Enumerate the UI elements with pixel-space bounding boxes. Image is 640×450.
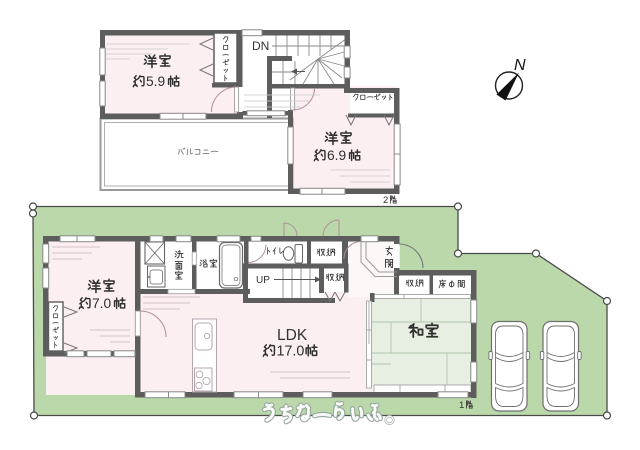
svg-text:5.9: 5.9 — [146, 74, 165, 89]
svg-text:17.0: 17.0 — [277, 344, 305, 360]
svg-text:DN: DN — [252, 39, 269, 53]
svg-text:LDK: LDK — [277, 327, 308, 344]
svg-text:1: 1 — [459, 400, 464, 411]
svg-text:7.0: 7.0 — [92, 296, 111, 311]
svg-text:N: N — [514, 57, 526, 74]
svg-text:2: 2 — [383, 195, 388, 206]
svg-text:6.9: 6.9 — [327, 148, 346, 163]
svg-text:UP: UP — [256, 275, 270, 286]
